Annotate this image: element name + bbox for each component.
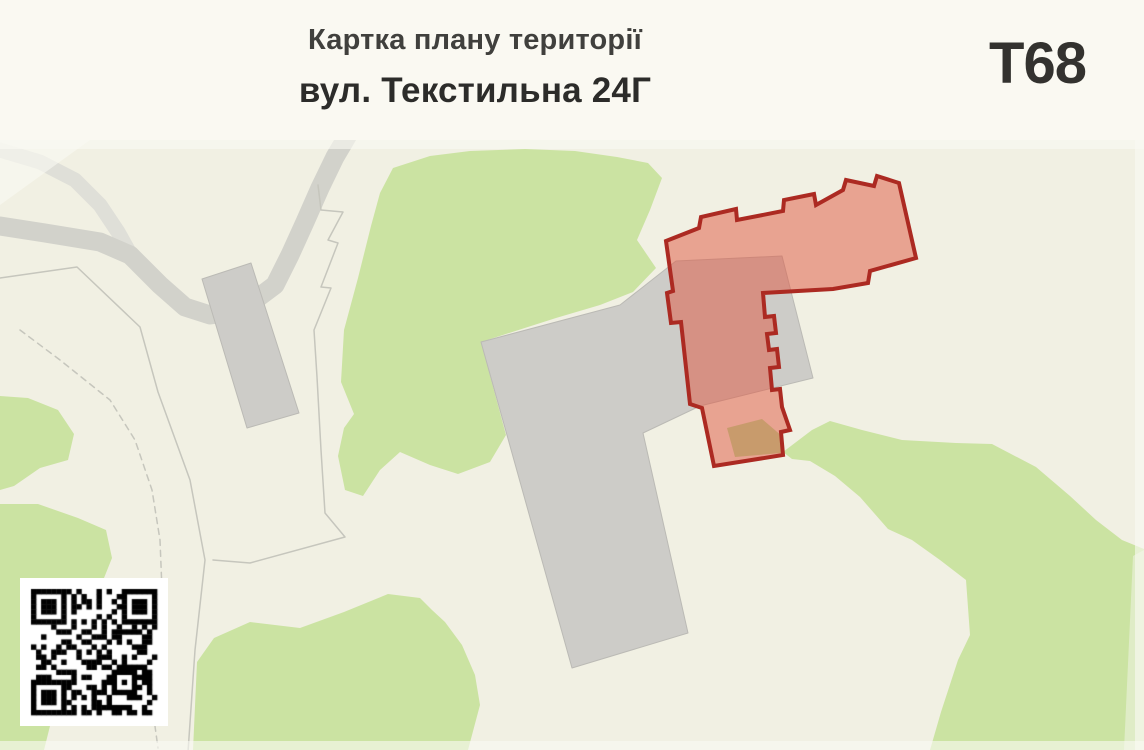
qr-pattern [20, 578, 168, 726]
card-header: Картка плану території вул. Текстильна 2… [0, 0, 1144, 140]
map-fade-right [1135, 140, 1144, 750]
page-subtitle: вул. Текстильна 24Г [0, 71, 950, 111]
map-fade-top [0, 140, 1144, 149]
map-canvas [0, 140, 1144, 750]
greenery-bottom-center [193, 594, 480, 750]
map-fade-bottom [0, 741, 1144, 750]
greenery-bottom-right [783, 421, 1144, 750]
page-title: Картка плану території [0, 24, 950, 57]
building-small [202, 263, 299, 428]
sheet-badge: Т68 [989, 30, 1086, 97]
qr-code [20, 578, 168, 726]
greenery-left-upper [0, 396, 74, 490]
plan-card: Картка плану території вул. Текстильна 2… [0, 0, 1144, 750]
territory-map [0, 140, 1144, 750]
title-block: Картка плану території вул. Текстильна 2… [0, 0, 950, 111]
